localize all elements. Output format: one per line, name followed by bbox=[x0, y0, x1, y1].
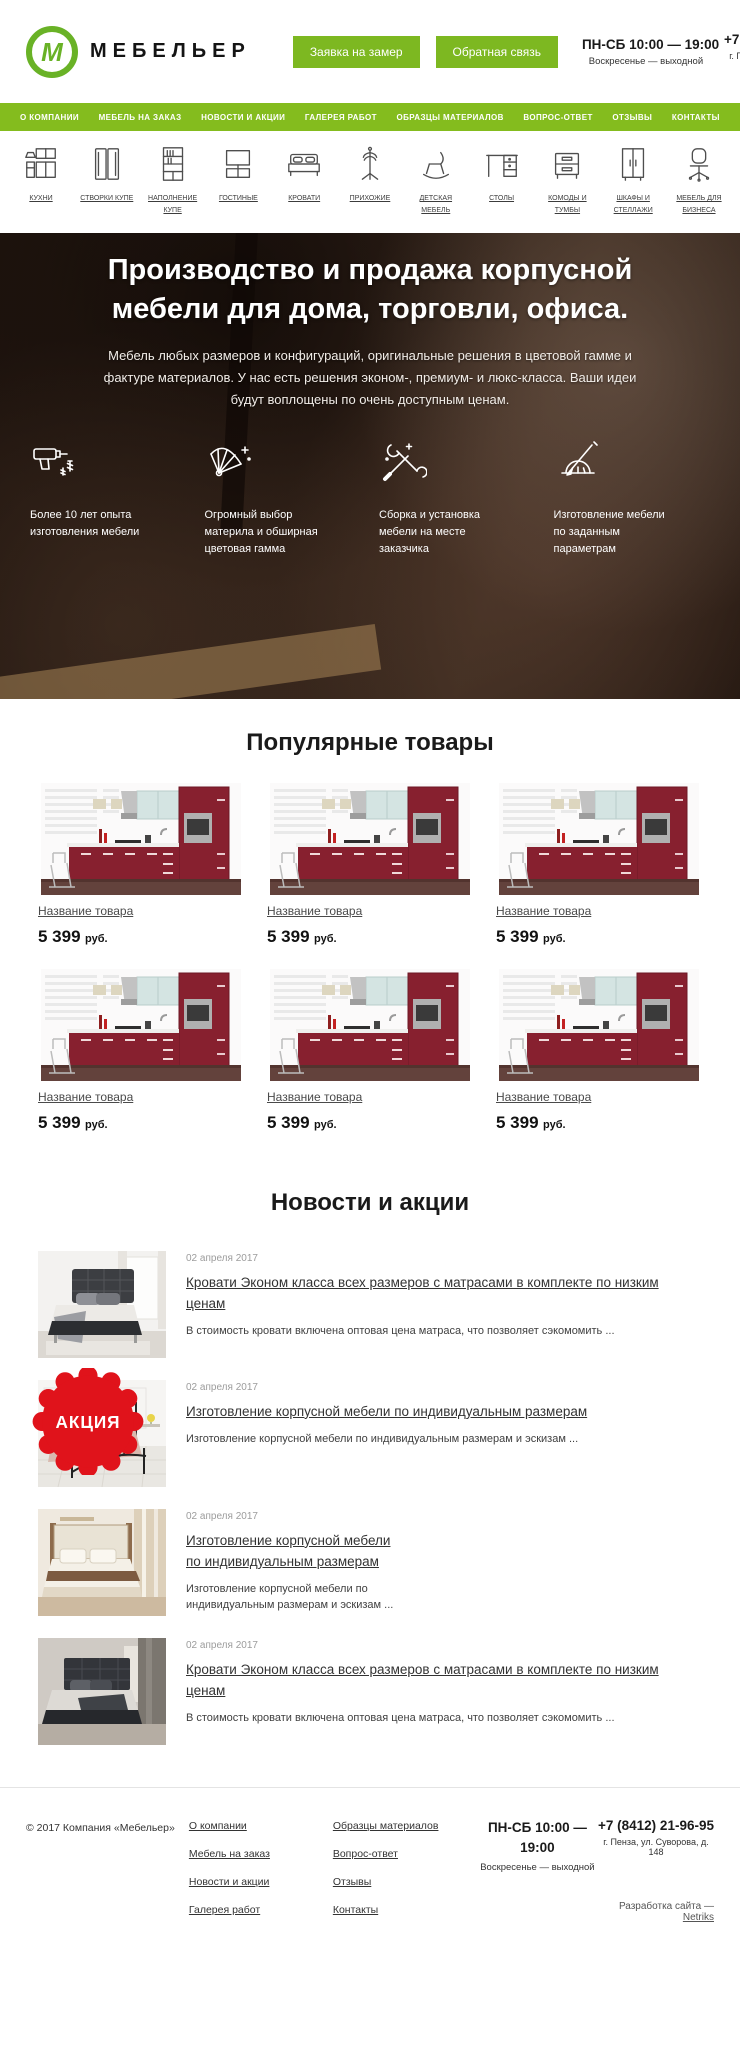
product-name-link[interactable]: Название товара bbox=[267, 1090, 362, 1104]
tv-stand-icon bbox=[219, 170, 257, 187]
header-contact: +7 (8412) 21-96-95 г. Пенза, ул. Суворов… bbox=[724, 32, 740, 71]
nav-item-news[interactable]: НОВОСТИ И АКЦИИ bbox=[201, 113, 285, 122]
news-date: 02 апреля 2017 bbox=[186, 1511, 436, 1522]
footer-links-col1: О компании Мебель на заказ Новости и акц… bbox=[189, 1818, 333, 1932]
logo-wordmark: МЕБЕЛЬЕР bbox=[90, 40, 251, 63]
product-card: Название товара 5 399 руб. bbox=[496, 783, 702, 947]
news-item-text: В стоимость кровати включена оптовая цен… bbox=[186, 1323, 686, 1340]
footer-link-about[interactable]: О компании bbox=[189, 1820, 333, 1832]
news-item-title[interactable]: Кровати Эконом класса всех размеров с ма… bbox=[186, 1273, 686, 1315]
product-card: Название товара 5 399 руб. bbox=[267, 783, 473, 947]
credits-link[interactable]: Netriks bbox=[683, 1912, 714, 1923]
product-name-link[interactable]: Название товара bbox=[38, 904, 133, 918]
news-image[interactable] bbox=[38, 1509, 166, 1616]
product-price: 5 399 руб. bbox=[267, 1113, 473, 1133]
sliding-doors-icon bbox=[88, 170, 126, 187]
nav-item-samples[interactable]: ОБРАЗЦЫ МАТЕРИАЛОВ bbox=[396, 113, 503, 122]
header: М МЕБЕЛЬЕР Заявка на замер Обратная связ… bbox=[0, 0, 740, 103]
category-tables[interactable]: СТОЛЫ bbox=[471, 145, 533, 217]
product-name-link[interactable]: Название товара bbox=[38, 1090, 133, 1104]
news-title: Новости и акции bbox=[38, 1189, 702, 1217]
product-card: Название товара 5 399 руб. bbox=[38, 969, 244, 1133]
news-section: Новости и акции 02 апреля 2017 Кровати Э… bbox=[0, 1133, 740, 1745]
svg-text:АКЦИЯ: АКЦИЯ bbox=[56, 1412, 121, 1432]
footer-link-contacts[interactable]: Контакты bbox=[333, 1904, 477, 1916]
nav-item-reviews[interactable]: ОТЗЫВЫ bbox=[612, 113, 652, 122]
footer-link-faq[interactable]: Вопрос-ответ bbox=[333, 1848, 477, 1860]
coat-rack-icon bbox=[351, 170, 389, 187]
feature-text: Изготовление мебели по заданным параметр… bbox=[554, 507, 679, 558]
product-image[interactable] bbox=[496, 783, 702, 895]
product-image[interactable] bbox=[38, 783, 244, 895]
footer-working-hours-note: Воскресенье — выходной bbox=[477, 1862, 598, 1873]
hero-subtitle: Мебель любых размеров и конфигураций, ор… bbox=[90, 345, 650, 411]
footer-link-samples[interactable]: Образцы материалов bbox=[333, 1820, 477, 1832]
footer-phone[interactable]: +7 (8412) 21-96-95 bbox=[598, 1818, 714, 1833]
feature-custom: Изготовление мебели по заданным параметр… bbox=[554, 437, 711, 558]
news-date: 02 апреля 2017 bbox=[186, 1382, 587, 1393]
site-credits: Разработка сайта — Netriks bbox=[598, 1901, 714, 1923]
product-name-link[interactable]: Название товара bbox=[496, 1090, 591, 1104]
drafting-icon bbox=[554, 437, 711, 485]
wardrobe-icon bbox=[614, 170, 652, 187]
product-name-link[interactable]: Название товара bbox=[267, 904, 362, 918]
product-price: 5 399 руб. bbox=[496, 927, 702, 947]
drill-icon bbox=[30, 437, 187, 485]
hero-features: Более 10 лет опыта изготовления мебели О… bbox=[0, 411, 740, 558]
product-card: Название товара 5 399 руб. bbox=[496, 969, 702, 1133]
category-wardrobe-fill[interactable]: НАПОЛНЕНИЕ КУПЕ bbox=[142, 145, 204, 217]
news-item-text: Изготовление корпусной мебели по индивид… bbox=[186, 1431, 587, 1448]
color-swatches-icon bbox=[205, 437, 362, 485]
category-living-rooms[interactable]: ГОСТИНЫЕ bbox=[207, 145, 269, 217]
promo-badge: АКЦИЯ bbox=[24, 1368, 86, 1430]
product-name-link[interactable]: Название товара bbox=[496, 904, 591, 918]
rocking-toy-icon bbox=[417, 170, 455, 187]
news-item: 02 апреля 2017 Кровати Эконом класса все… bbox=[38, 1251, 702, 1358]
footer-link-reviews[interactable]: Отзывы bbox=[333, 1876, 477, 1888]
news-image[interactable] bbox=[38, 1251, 166, 1358]
footer-hours: ПН-СБ 10:00 — 19:00 Воскресенье — выходн… bbox=[477, 1818, 598, 1932]
product-card: Название товара 5 399 руб. bbox=[38, 783, 244, 947]
working-hours: ПН-СБ 10:00 — 19:00 bbox=[582, 37, 710, 52]
hero-banner: Производство и продажа корпусной мебели … bbox=[0, 233, 740, 699]
news-item-title[interactable]: Кровати Эконом класса всех размеров с ма… bbox=[186, 1660, 686, 1702]
product-image[interactable] bbox=[267, 969, 473, 1081]
bed-icon bbox=[285, 170, 323, 187]
product-image[interactable] bbox=[38, 969, 244, 1081]
category-sliding-doors[interactable]: СТВОРКИ КУПЕ bbox=[76, 145, 138, 217]
product-image[interactable] bbox=[267, 783, 473, 895]
address: г. Пенза, ул. Суворова, д. 148 bbox=[724, 51, 740, 71]
dresser-icon bbox=[548, 170, 586, 187]
nav-item-gallery[interactable]: ГАЛЕРЕЯ РАБОТ bbox=[305, 113, 377, 122]
copyright: © 2017 Компания «Мебельер» bbox=[26, 1818, 189, 1932]
logo-letter: М bbox=[41, 39, 63, 65]
footer-link-news[interactable]: Новости и акции bbox=[189, 1876, 333, 1888]
hero-wood-beam bbox=[0, 624, 381, 699]
feedback-button[interactable]: Обратная связь bbox=[436, 36, 558, 68]
product-price: 5 399 руб. bbox=[38, 927, 244, 947]
feature-text: Огромный выбор материла и обширная цвето… bbox=[205, 507, 330, 558]
tools-icon bbox=[379, 437, 536, 485]
news-item-title[interactable]: Изготовление корпусной мебели по индивид… bbox=[186, 1402, 587, 1423]
feature-experience: Более 10 лет опыта изготовления мебели bbox=[30, 437, 187, 558]
news-item-text: В стоимость кровати включена оптовая цен… bbox=[186, 1710, 686, 1727]
products-title: Популярные товары bbox=[38, 729, 702, 757]
desk-icon bbox=[483, 170, 521, 187]
nav-item-custom-furniture[interactable]: МЕБЕЛЬ НА ЗАКАЗ bbox=[99, 113, 182, 122]
kitchen-icon bbox=[22, 170, 60, 187]
category-beds[interactable]: КРОВАТИ bbox=[273, 145, 335, 217]
nav-item-about[interactable]: О КОМПАНИИ bbox=[20, 113, 79, 122]
category-kids-furniture[interactable]: ДЕТСКАЯ МЕБЕЛЬ bbox=[405, 145, 467, 217]
category-bar: КУХНИ СТВОРКИ КУПЕ НАПОЛНЕНИЕ КУПЕ ГОСТИ… bbox=[0, 131, 740, 233]
page: М МЕБЕЛЬЕР Заявка на замер Обратная связ… bbox=[0, 0, 740, 1972]
category-dressers[interactable]: КОМОДЫ И ТУМБЫ bbox=[536, 145, 598, 217]
nav-item-faq[interactable]: ВОПРОС-ОТВЕТ bbox=[523, 113, 592, 122]
product-card: Название товара 5 399 руб. bbox=[267, 969, 473, 1133]
popular-products-section: Популярные товары Название товара 5 399 … bbox=[0, 699, 740, 1133]
feature-text: Сборка и установка мебели на месте заказ… bbox=[379, 507, 504, 558]
feature-materials: Огромный выбор материла и обширная цвето… bbox=[205, 437, 362, 558]
category-wardrobes[interactable]: ШКАФЫ И СТЕЛЛАЖИ bbox=[602, 145, 664, 217]
product-price: 5 399 руб. bbox=[38, 1113, 244, 1133]
feature-assembly: Сборка и установка мебели на месте заказ… bbox=[379, 437, 536, 558]
category-hallways[interactable]: ПРИХОЖИЕ bbox=[339, 145, 401, 217]
footer-working-hours: ПН-СБ 10:00 — 19:00 bbox=[477, 1818, 598, 1859]
footer-link-custom-furniture[interactable]: Мебель на заказ bbox=[189, 1848, 333, 1860]
working-hours-note: Воскресенье — выходной bbox=[582, 56, 710, 67]
news-date: 02 апреля 2017 bbox=[186, 1640, 686, 1651]
request-measure-button[interactable]: Заявка на замер bbox=[293, 36, 420, 68]
footer-links-col2: Образцы материалов Вопрос-ответ Отзывы К… bbox=[333, 1818, 477, 1932]
product-price: 5 399 руб. bbox=[267, 927, 473, 947]
news-item: АКЦИЯ 02 апреля 2017 Изготовление корпус… bbox=[38, 1380, 702, 1487]
feature-text: Более 10 лет опыта изготовления мебели bbox=[30, 507, 155, 541]
news-item: 02 апреля 2017 Изготовление корпусной ме… bbox=[38, 1509, 702, 1616]
logo[interactable]: М МЕБЕЛЬЕР bbox=[26, 26, 251, 78]
footer-contact: +7 (8412) 21-96-95 г. Пенза, ул. Суворов… bbox=[598, 1818, 714, 1932]
product-image[interactable] bbox=[496, 969, 702, 1081]
footer: © 2017 Компания «Мебельер» О компании Ме… bbox=[0, 1787, 740, 1972]
logo-icon: М bbox=[26, 26, 78, 78]
category-business-furniture[interactable]: МЕБЕЛЬ ДЛЯ БИЗНЕСА bbox=[668, 145, 730, 217]
products-grid: Название товара 5 399 руб. Название това… bbox=[38, 783, 702, 1133]
phone-number[interactable]: +7 (8412) 21-96-95 bbox=[724, 32, 740, 47]
main-nav: О КОМПАНИИ МЕБЕЛЬ НА ЗАКАЗ НОВОСТИ И АКЦ… bbox=[0, 103, 740, 131]
header-hours: ПН-СБ 10:00 — 19:00 Воскресенье — выходн… bbox=[582, 37, 710, 67]
category-kitchens[interactable]: КУХНИ bbox=[10, 145, 72, 217]
footer-address: г. Пенза, ул. Суворова, д. 148 bbox=[598, 1837, 714, 1857]
header-buttons: Заявка на замер Обратная связь bbox=[293, 36, 558, 68]
news-item: 02 апреля 2017 Кровати Эконом класса все… bbox=[38, 1638, 702, 1745]
hero-title: Производство и продажа корпусной мебели … bbox=[80, 251, 660, 329]
news-image[interactable] bbox=[38, 1638, 166, 1745]
shelving-icon bbox=[154, 170, 192, 187]
product-price: 5 399 руб. bbox=[496, 1113, 702, 1133]
office-chair-icon bbox=[680, 170, 718, 187]
news-item-title[interactable]: Изготовление корпусной мебели по индивид… bbox=[186, 1531, 406, 1573]
nav-item-contacts[interactable]: КОНТАКТЫ bbox=[672, 113, 720, 122]
news-image[interactable]: АКЦИЯ bbox=[38, 1380, 166, 1487]
news-item-text: Изготовление корпусной мебели по индивид… bbox=[186, 1581, 436, 1614]
footer-link-gallery[interactable]: Галерея работ bbox=[189, 1904, 333, 1916]
news-date: 02 апреля 2017 bbox=[186, 1253, 686, 1264]
